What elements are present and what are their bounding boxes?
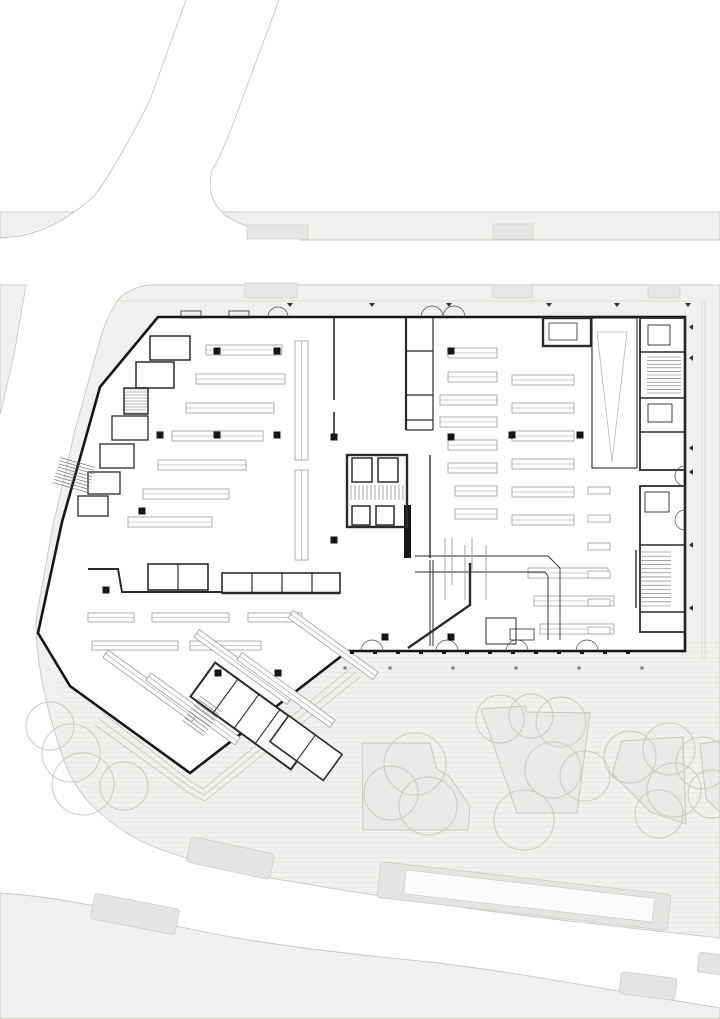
shelving-unit — [512, 487, 574, 497]
facade-post — [603, 650, 607, 654]
structural-column — [157, 432, 164, 439]
shelving-unit — [512, 403, 574, 413]
shelving-unit — [588, 599, 610, 606]
facade-post — [465, 650, 469, 654]
canopy-slab — [245, 283, 297, 298]
shelving-unit — [588, 627, 610, 634]
facade-post — [419, 650, 423, 654]
facade-post — [396, 650, 400, 654]
plaza-bollard — [515, 667, 518, 670]
structural-column — [274, 432, 281, 439]
shelving-unit — [196, 374, 285, 384]
shelf-outline — [588, 627, 610, 634]
structural-column — [448, 348, 455, 355]
shelving-unit — [295, 341, 308, 460]
shelving-unit — [440, 417, 497, 427]
structural-column — [331, 434, 338, 441]
structural-column — [214, 348, 221, 355]
shelving-unit — [440, 395, 497, 405]
shelving-unit — [455, 509, 497, 519]
canopy-slab — [648, 285, 680, 298]
sidewalk-sliver-left — [0, 285, 26, 415]
shelving-unit — [186, 403, 274, 413]
shelving-unit — [588, 487, 610, 494]
shelving-unit — [92, 641, 178, 650]
facade-post — [373, 650, 377, 654]
plaza-bollard — [578, 667, 581, 670]
structural-column — [382, 634, 389, 641]
shelf-outline — [588, 543, 610, 550]
floor-plan-page — [0, 0, 720, 1019]
structural-column — [331, 537, 338, 544]
shelf-outline — [588, 487, 610, 494]
shelving-unit — [455, 486, 497, 496]
shelving-unit — [512, 459, 574, 469]
facade-post — [557, 650, 561, 654]
structural-column — [577, 432, 584, 439]
shelf-outline — [588, 571, 610, 578]
shelf-outline — [588, 515, 610, 522]
facade-post — [626, 650, 630, 654]
shelving-unit — [588, 515, 610, 522]
shelving-unit — [88, 613, 134, 622]
structural-column — [274, 348, 281, 355]
shelving-unit — [512, 375, 574, 385]
shelving-unit — [295, 470, 308, 560]
shelving-unit — [143, 489, 229, 499]
structural-column — [448, 434, 455, 441]
plaza-bollard — [641, 667, 644, 670]
floor-plan-drawing — [0, 0, 720, 1019]
plaza-bollard — [452, 667, 455, 670]
shelving-unit — [158, 460, 246, 470]
shelf-outline — [588, 599, 610, 606]
shelving-unit — [128, 517, 212, 527]
facade-post — [534, 650, 538, 654]
facade-post — [580, 650, 584, 654]
facade-post — [350, 650, 354, 654]
shelving-unit — [448, 372, 497, 382]
shelving-unit — [512, 515, 574, 525]
shelving-unit — [448, 463, 497, 473]
structural-column — [214, 432, 221, 439]
canopy-slab — [493, 224, 533, 239]
shelving-unit — [512, 431, 574, 441]
structural-column — [448, 634, 455, 641]
road-median-strip — [697, 952, 720, 976]
shelving-unit — [588, 543, 610, 550]
structural-column — [509, 432, 516, 439]
plaza-bollard — [344, 667, 347, 670]
facade-post — [488, 650, 492, 654]
structural-column — [139, 508, 146, 515]
facade-post — [511, 650, 515, 654]
shelving-unit — [588, 571, 610, 578]
road-diagonal — [0, 0, 300, 241]
canopy-slab — [493, 285, 532, 298]
canopy-slab — [247, 225, 308, 239]
facade-post — [442, 650, 446, 654]
shelving-unit — [448, 348, 497, 358]
structural-column — [103, 587, 110, 594]
structural-column — [215, 670, 222, 677]
shelving-unit — [152, 613, 229, 622]
plaza-bollard — [389, 667, 392, 670]
structural-column — [275, 670, 282, 677]
shelving-unit — [448, 440, 497, 450]
